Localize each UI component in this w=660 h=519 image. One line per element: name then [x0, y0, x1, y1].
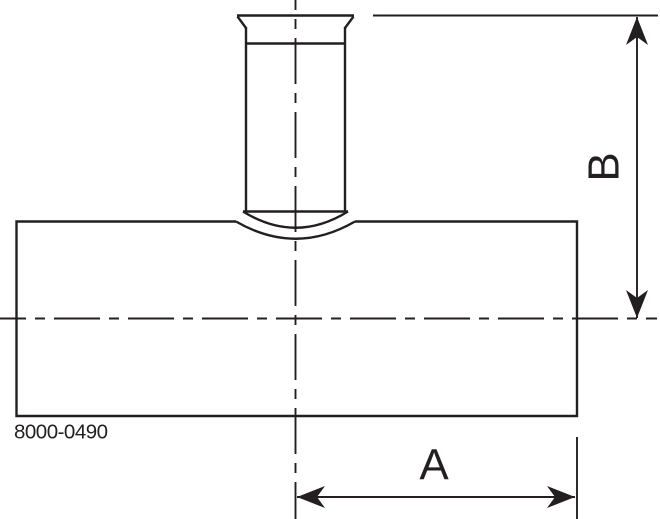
- ferrule-flange-right-taper: [345, 17, 354, 29]
- technical-drawing: B A 8000-0490: [0, 0, 660, 519]
- technical-drawing-canvas: B A 8000-0490: [0, 0, 660, 519]
- ferrule-flange-left-taper: [238, 17, 247, 29]
- dimension-a: A: [297, 437, 577, 519]
- part-number-label: 8000-0490: [14, 421, 108, 444]
- dimension-a-label: A: [419, 441, 449, 490]
- dimension-b: B: [373, 16, 658, 319]
- dimension-b-label: B: [580, 152, 629, 181]
